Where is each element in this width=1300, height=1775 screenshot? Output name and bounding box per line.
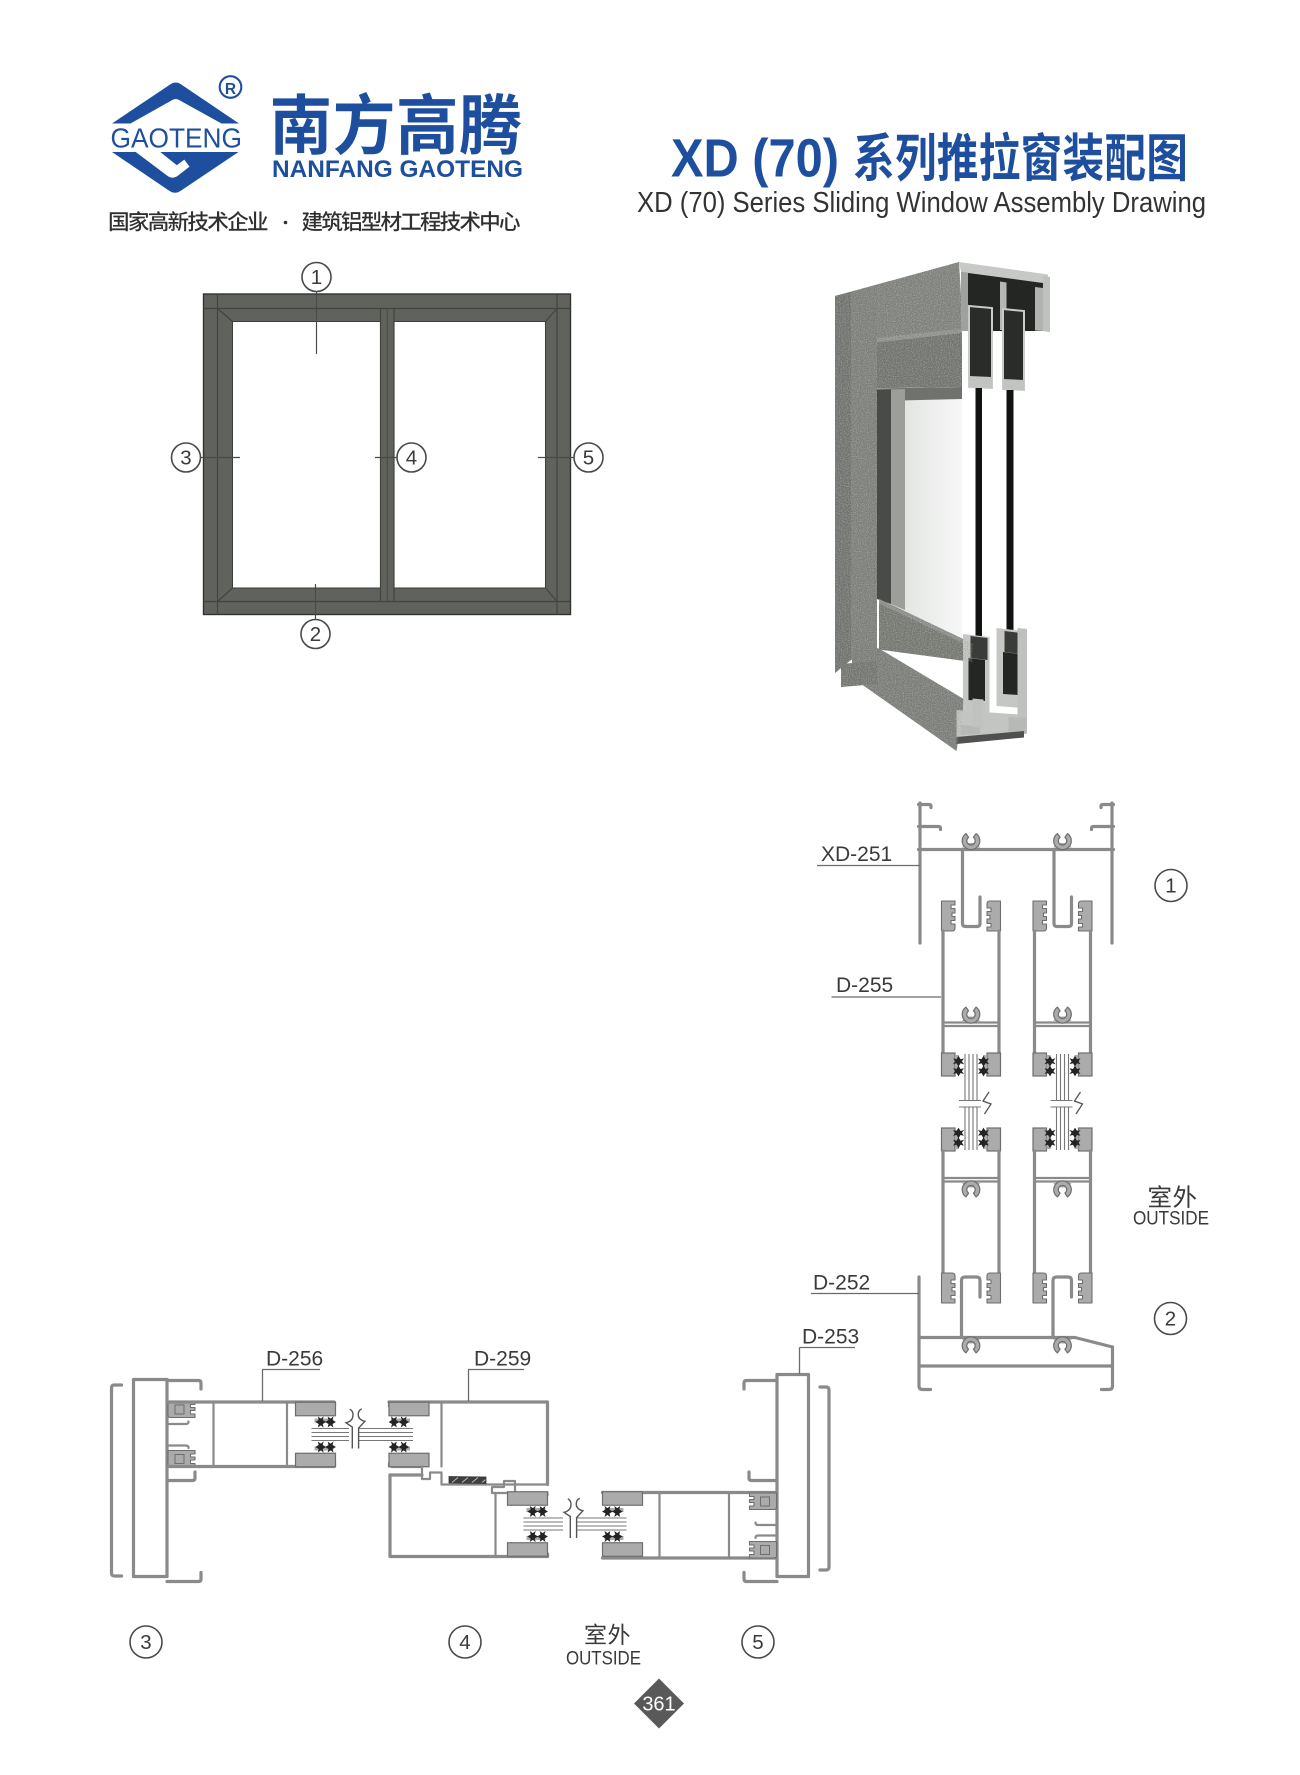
svg-text:4: 4 [459,1631,470,1654]
svg-text:2: 2 [1165,1308,1176,1331]
svg-text:D-255: D-255 [836,974,893,997]
svg-text:GAOTENG: GAOTENG [111,123,243,154]
svg-text:NANFANG GAOTENG: NANFANG GAOTENG [272,156,523,183]
svg-text:D-252: D-252 [813,1272,870,1295]
svg-text:XD (70): XD (70) [671,129,839,189]
svg-text:5: 5 [583,447,594,470]
svg-text:D-256: D-256 [266,1348,323,1371]
svg-text:361: 361 [642,1694,675,1716]
svg-text:3: 3 [180,447,191,470]
svg-text:3: 3 [140,1631,151,1654]
svg-text:D-253: D-253 [802,1326,859,1349]
svg-text:XD (70) Series Sliding Window: XD (70) Series Sliding Window Assembly D… [637,187,1206,219]
svg-text:R: R [225,81,236,98]
svg-text:D-259: D-259 [474,1348,531,1371]
svg-text:OUTSIDE: OUTSIDE [566,1648,641,1670]
svg-text:4: 4 [406,447,417,470]
svg-text:2: 2 [310,623,321,646]
svg-text:OUTSIDE: OUTSIDE [1133,1208,1209,1230]
svg-text:5: 5 [752,1631,763,1654]
svg-text:1: 1 [1165,875,1176,898]
svg-text:XD-251: XD-251 [821,843,892,866]
svg-text:1: 1 [311,266,322,289]
